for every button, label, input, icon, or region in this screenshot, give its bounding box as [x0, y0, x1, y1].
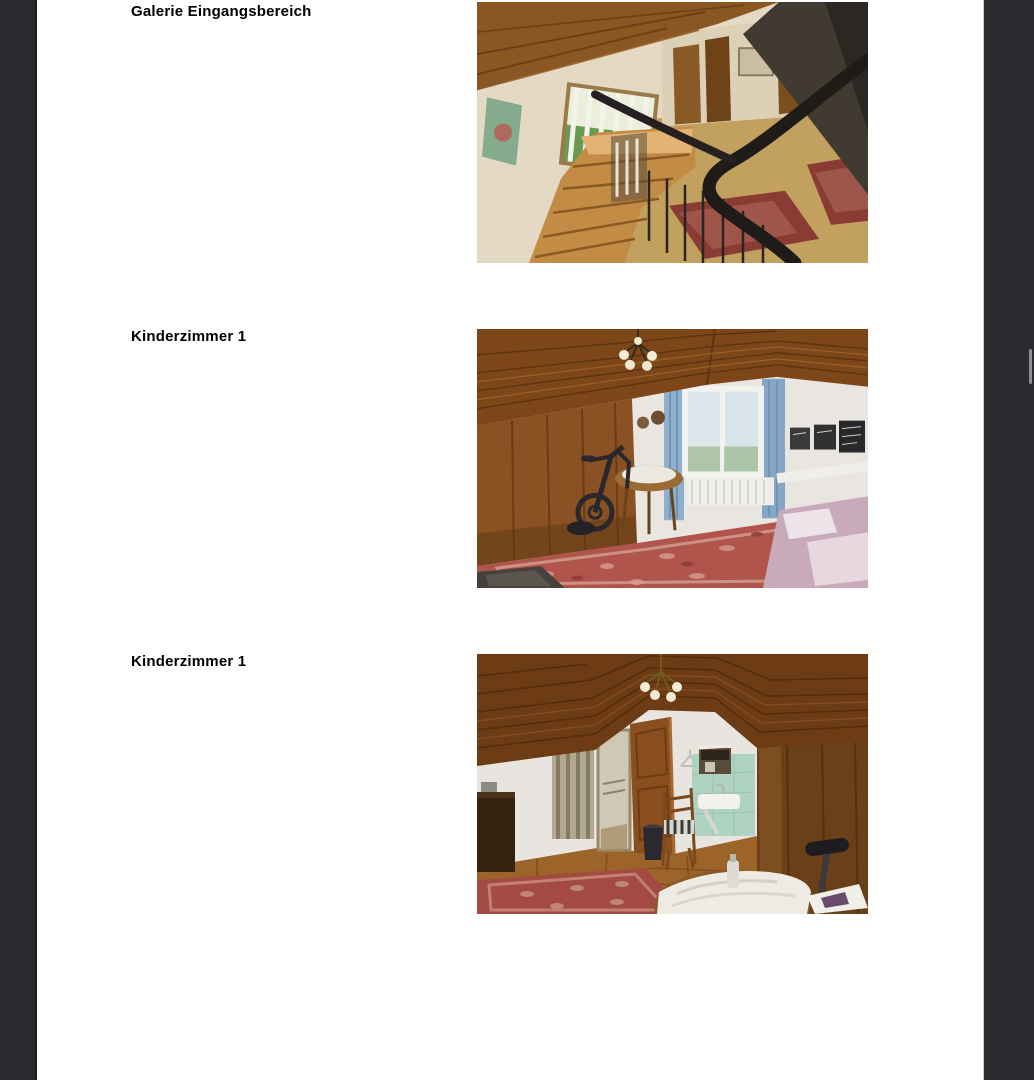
photo-staircase-entrance — [477, 2, 868, 263]
photo-caption-3: Kinderzimmer 1 — [131, 653, 246, 671]
childrens-room-window-illustration — [477, 329, 868, 588]
photo-caption-1: Galerie Eingangsbereich — [131, 3, 312, 21]
staircase-photo-illustration — [477, 2, 868, 263]
childrens-room-sink-illustration — [477, 654, 868, 914]
photo-childrens-room-window — [477, 329, 868, 588]
photo-childrens-room-sink — [477, 654, 868, 914]
photo-caption-2: Kinderzimmer 1 — [131, 328, 246, 346]
document-page: Galerie Eingangsbereich — [35, 0, 984, 1080]
scrollbar-thumb[interactable] — [1029, 349, 1032, 384]
